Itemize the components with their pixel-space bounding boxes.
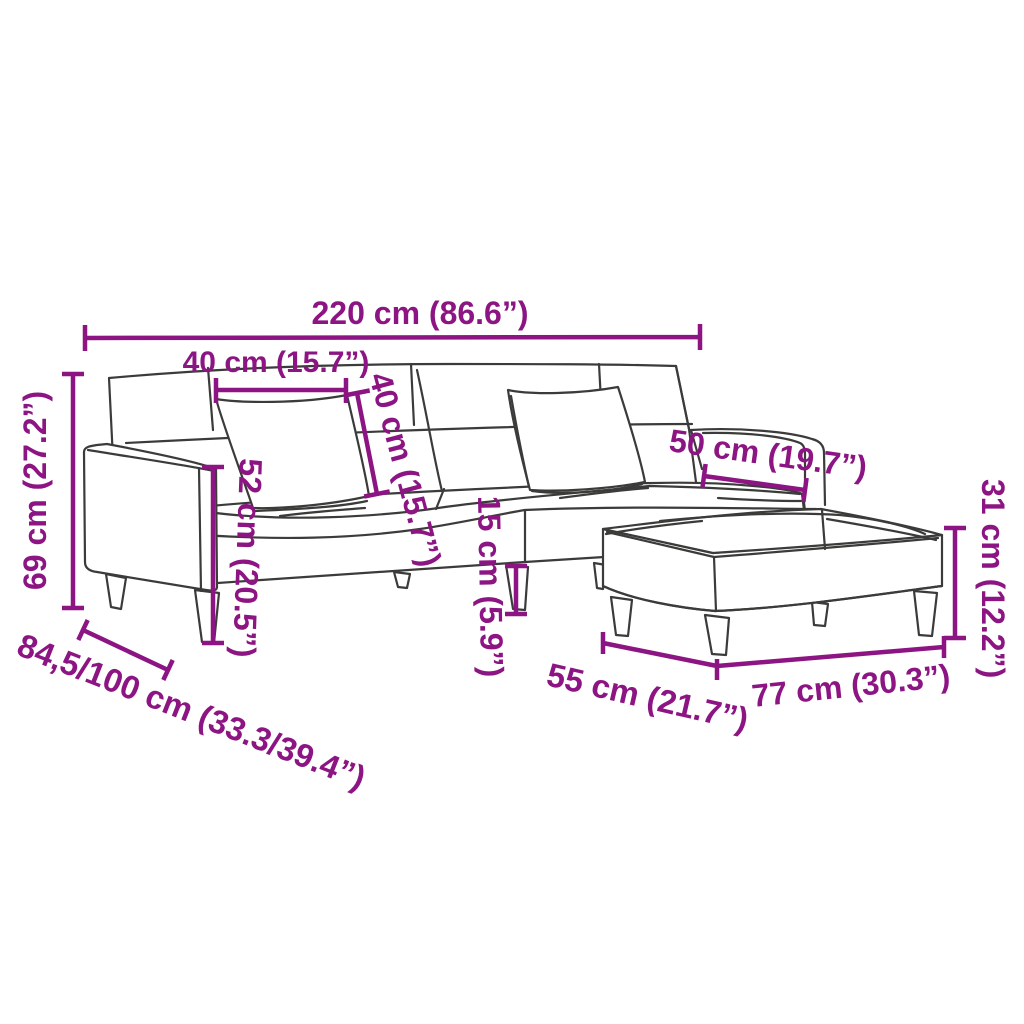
svg-text:220 cm (86.6”): 220 cm (86.6”) <box>311 295 528 331</box>
svg-text:15 cm (5.9”): 15 cm (5.9”) <box>471 495 510 677</box>
svg-text:69 cm (27.2”): 69 cm (27.2”) <box>17 391 53 590</box>
svg-text:40 cm (15.7”): 40 cm (15.7”) <box>183 346 370 379</box>
svg-text:52 cm (20.5”): 52 cm (20.5”) <box>226 458 269 658</box>
svg-text:31 cm (12.2”): 31 cm (12.2”) <box>975 479 1011 678</box>
